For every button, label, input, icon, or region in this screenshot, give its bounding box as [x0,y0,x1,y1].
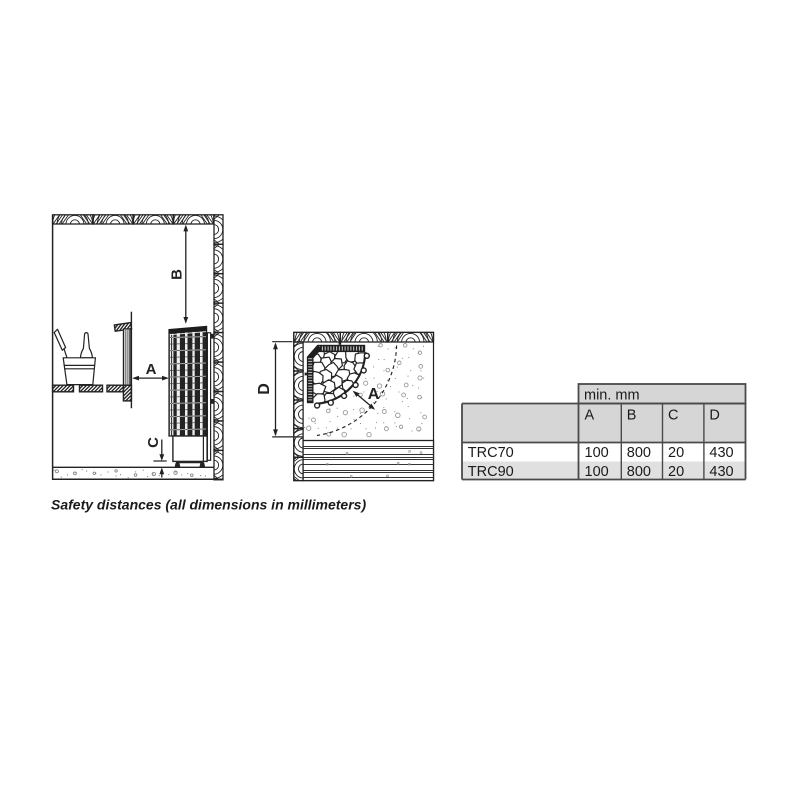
svg-text:TRC90: TRC90 [468,464,514,480]
svg-text:100: 100 [585,445,609,461]
svg-text:100: 100 [585,464,609,480]
svg-text:430: 430 [709,445,733,461]
svg-text:A: A [146,361,157,378]
svg-text:A: A [368,386,380,403]
svg-text:D: D [709,408,719,424]
svg-text:800: 800 [627,445,651,461]
svg-text:B: B [627,408,637,424]
svg-text:B: B [169,269,186,280]
svg-text:min. mm: min. mm [584,388,640,404]
svg-text:800: 800 [627,464,651,480]
svg-text:TRC70: TRC70 [468,445,514,461]
svg-text:430: 430 [709,464,733,480]
svg-text:Safety distances (all dimensio: Safety distances (all dimensions in mill… [51,497,366,513]
svg-text:C: C [145,437,162,448]
svg-text:20: 20 [668,445,684,461]
svg-text:20: 20 [668,464,684,480]
svg-text:D: D [256,383,273,395]
svg-text:A: A [585,408,595,424]
svg-text:C: C [668,408,678,424]
